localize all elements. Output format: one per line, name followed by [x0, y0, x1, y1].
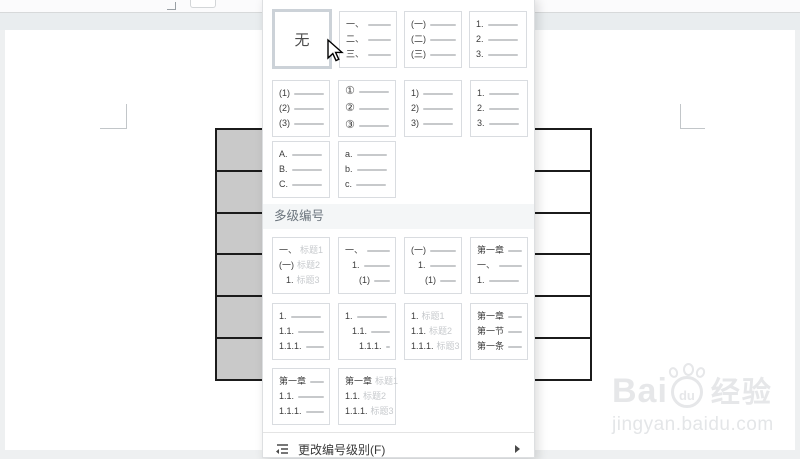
text-placeholder-line: [357, 316, 387, 318]
numbering-preview-line: 一、: [345, 246, 391, 255]
numbering-preview-line: B.: [279, 165, 325, 174]
numbering-preview-line: (1): [359, 276, 391, 285]
multilevel-row-2: 第一章1.1.1.1.1.第一章标题11.1.标题21.1.1.标题3: [272, 368, 396, 425]
numbering-prefix: 1.1.1.: [345, 407, 368, 416]
text-placeholder-line: [356, 184, 386, 186]
numbering-preview-line: 3): [411, 119, 457, 128]
text-placeholder-line: [508, 250, 522, 252]
text-placeholder-line: [367, 250, 390, 252]
numbering-prefix: 1.1.: [352, 327, 367, 336]
numbering-dropdown-panel: 无一、二、三、(一)(二)(三)1.2.3. (1)(2)(3)①②③1)2)3…: [262, 0, 535, 458]
numbering-preview-line: c.: [345, 180, 391, 189]
heading-placeholder: 标题2: [429, 327, 452, 336]
numbering-option[interactable]: a.b.c.: [338, 141, 396, 198]
watermark-logo: Bai du 经验: [612, 371, 774, 408]
text-placeholder-line: [359, 125, 389, 127]
numbering-option[interactable]: ①②③: [338, 80, 396, 137]
numbering-prefix: (一): [411, 20, 426, 29]
text-placeholder-line: [294, 123, 324, 125]
numbering-prefix: (一): [411, 246, 426, 255]
numbering-preview-line: A.: [279, 150, 325, 159]
text-placeholder-line: [298, 396, 324, 398]
numbering-preview-line: a.: [345, 150, 391, 159]
text-placeholder-line: [294, 93, 324, 95]
change-numbering-level-menu-item[interactable]: 更改编号级别(F): [263, 432, 534, 459]
numbering-preview-line: 1.: [345, 312, 391, 321]
text-placeholder-line: [423, 93, 453, 95]
numbering-preview-line: 1.: [418, 261, 457, 270]
text-placeholder-line: [364, 265, 390, 267]
text-placeholder-line: [489, 93, 519, 95]
numbering-preview-line: 3.: [477, 119, 523, 128]
numbering-prefix: (2): [279, 104, 290, 113]
text-placeholder-line: [357, 154, 387, 156]
numbering-preview-line: 2.: [476, 35, 522, 44]
numbering-prefix: (3): [279, 119, 290, 128]
numbering-prefix: 3): [411, 119, 419, 128]
numbering-preview-line: 2): [411, 104, 457, 113]
numbering-preview-line: 1.1.1.标题3: [345, 407, 391, 416]
numbering-prefix: 2.: [477, 104, 485, 113]
multilevel-row-0: 一、标题1(一)标题21.标题3一、1.(1)(一)1.(1)第一章一、1.: [272, 237, 528, 294]
change-numbering-level-icon: [275, 443, 290, 455]
heading-placeholder: 标题1: [422, 312, 445, 321]
numbering-prefix: 1.: [352, 261, 360, 270]
numbering-prefix: 1.: [279, 312, 287, 321]
numbering-prefix: 1.1.1.: [359, 342, 382, 351]
heading-placeholder: 标题2: [363, 392, 386, 401]
numbering-prefix: 1.: [477, 89, 485, 98]
text-placeholder-line: [508, 346, 522, 348]
numbering-preview-line: 1.1.1.: [279, 407, 325, 416]
multilevel-section-header: 多级编号: [263, 204, 534, 229]
watermark-jingyan-text: 经验: [711, 379, 773, 408]
none-label: 无: [294, 29, 309, 50]
text-placeholder-line: [508, 316, 522, 318]
text-placeholder-line: [430, 24, 456, 26]
numbering-preview-line: (2): [279, 104, 325, 113]
numbering-prefix: ②: [345, 103, 355, 114]
simple-row-1: (1)(2)(3)①②③1)2)3)1.2.3.: [272, 80, 528, 137]
text-placeholder-line: [306, 411, 324, 413]
numbering-preview-line: 三、: [346, 50, 392, 59]
numbering-preview-line: 1.: [352, 261, 391, 270]
heading-placeholder: 标题1: [375, 377, 398, 386]
page-margin-mark-topright: [680, 104, 705, 129]
numbering-preview-line: ③: [345, 120, 391, 131]
numbering-preview-line: ②: [345, 103, 391, 114]
numbering-prefix: c.: [345, 180, 352, 189]
numbering-prefix: 1.1.: [279, 327, 294, 336]
text-placeholder-line: [371, 331, 390, 333]
numbering-prefix: ③: [345, 120, 355, 131]
text-placeholder-line: [368, 54, 391, 56]
multilevel-numbering-option[interactable]: 一、标题1(一)标题21.标题3: [272, 237, 330, 294]
numbering-preview-line: 1.1.: [352, 327, 391, 336]
numbering-preview-line: 一、: [477, 261, 523, 270]
multilevel-numbering-option[interactable]: 1.1.1.1.1.1.: [272, 303, 330, 360]
watermark-du-text: du: [679, 388, 695, 405]
numbering-preview-line: 第一章标题1: [345, 377, 391, 386]
numbering-prefix: 3.: [476, 50, 484, 59]
toolbar-tab-remnant: [190, 0, 216, 8]
text-placeholder-line: [368, 39, 391, 41]
text-placeholder-line: [292, 154, 322, 156]
numbering-preview-line: 1.: [477, 89, 523, 98]
text-placeholder-line: [430, 250, 456, 252]
numbering-preview-line: ①: [345, 86, 391, 97]
text-placeholder-line: [374, 280, 390, 282]
change-numbering-level-label: 更改编号级别(F): [298, 441, 515, 458]
numbering-preview-line: 第一章: [477, 312, 523, 321]
numbering-preview-line: 第一章: [477, 246, 523, 255]
baidu-paw-icon: du: [671, 376, 703, 408]
numbering-prefix: C.: [279, 180, 288, 189]
text-placeholder-line: [499, 265, 522, 267]
numbering-preview-line: 2.: [477, 104, 523, 113]
text-placeholder-line: [368, 24, 391, 26]
numbering-preview-line: 1.标题3: [286, 276, 325, 285]
submenu-arrow-icon: [515, 445, 520, 453]
numbering-prefix: 2.: [476, 35, 484, 44]
numbering-prefix: 1.1.: [411, 327, 426, 336]
numbering-preview-line: 1): [411, 89, 457, 98]
numbering-option[interactable]: (1)(2)(3): [272, 80, 330, 137]
numbering-preview-line: 1.1.: [279, 327, 325, 336]
numbering-option[interactable]: 1.2.3.: [470, 80, 528, 137]
numbering-preview-line: 1.1.标题2: [345, 392, 391, 401]
numbering-prefix: (1): [359, 276, 370, 285]
numbering-prefix: 1.1.1.: [279, 342, 302, 351]
heading-placeholder: 标题3: [371, 407, 394, 416]
ruler-corner-mark-icon: [167, 2, 176, 10]
numbering-prefix: a.: [345, 150, 353, 159]
text-placeholder-line: [508, 331, 522, 333]
numbering-prefix: 第一章: [477, 246, 504, 255]
multilevel-numbering-option[interactable]: 1.1.1.1.1.1.: [338, 303, 396, 360]
numbering-prefix: (二): [411, 35, 426, 44]
numbering-prefix: 1.: [345, 312, 353, 321]
numbering-preview-line: (3): [279, 119, 325, 128]
numbering-preview-line: (1): [425, 276, 457, 285]
numbering-prefix: (三): [411, 50, 426, 59]
numbering-option-none[interactable]: 无: [272, 9, 332, 69]
numbering-preview-line: 1.1.1.: [279, 342, 325, 351]
numbering-preview-line: C.: [279, 180, 325, 189]
numbering-prefix: (1): [279, 89, 290, 98]
numbering-preview-line: 第一节: [477, 327, 523, 336]
numbering-preview-line: 一、标题1: [279, 246, 325, 255]
numbering-prefix: (一): [279, 261, 294, 270]
text-placeholder-line: [306, 346, 324, 348]
numbering-prefix: 第一章: [279, 377, 306, 386]
numbering-prefix: (1): [425, 276, 436, 285]
numbering-preview-line: 1.1.: [279, 392, 325, 401]
text-placeholder-line: [357, 169, 387, 171]
text-placeholder-line: [440, 280, 456, 282]
text-placeholder-line: [488, 54, 518, 56]
multilevel-numbering-option[interactable]: 第一章第一节第一条: [470, 303, 528, 360]
multilevel-numbering-option[interactable]: 第一章一、1.: [470, 237, 528, 294]
numbering-preview-line: 第一条: [477, 342, 523, 351]
numbering-preview-line: (三): [411, 50, 457, 59]
text-placeholder-line: [489, 280, 519, 282]
text-placeholder-line: [298, 331, 324, 333]
heading-placeholder: 标题3: [297, 276, 320, 285]
text-placeholder-line: [488, 39, 518, 41]
watermark-url: jingyan.baidu.com: [612, 414, 774, 436]
numbering-prefix: 1.1.1.: [279, 407, 302, 416]
mouse-cursor-icon: [325, 38, 349, 65]
text-placeholder-line: [488, 24, 518, 26]
simple-row-0: 无一、二、三、(一)(二)(三)1.2.3.: [272, 9, 527, 69]
numbering-prefix: 3.: [477, 119, 485, 128]
numbering-prefix: 1.: [411, 312, 419, 321]
numbering-preview-line: (1): [279, 89, 325, 98]
numbering-prefix: 1.1.: [345, 392, 360, 401]
page-margin-mark-topleft: [100, 104, 127, 129]
numbering-preview-line: 1.1.1.标题3: [411, 342, 457, 351]
text-placeholder-line: [359, 91, 389, 93]
numbering-prefix: 1.1.1.: [411, 342, 434, 351]
numbering-prefix: 1.: [476, 20, 484, 29]
numbering-preview-line: 1.: [476, 20, 522, 29]
multilevel-numbering-option[interactable]: 第一章标题11.1.标题21.1.1.标题3: [338, 368, 396, 425]
numbering-preview-line: 1.1.标题2: [411, 327, 457, 336]
numbering-prefix: A.: [279, 150, 288, 159]
numbering-prefix: 一、: [477, 261, 495, 270]
multilevel-numbering-option[interactable]: 一、1.(1): [338, 237, 396, 294]
numbering-option[interactable]: (一)(二)(三): [404, 11, 462, 68]
text-placeholder-line: [423, 123, 453, 125]
text-placeholder-line: [386, 346, 390, 348]
text-placeholder-line: [489, 123, 519, 125]
numbering-prefix: 一、: [345, 246, 363, 255]
heading-placeholder: 标题2: [297, 261, 320, 270]
multilevel-row-1: 1.1.1.1.1.1.1.1.1.1.1.1.1.标题11.1.标题21.1.…: [272, 303, 528, 360]
text-placeholder-line: [310, 381, 324, 383]
numbering-prefix: 1.: [418, 261, 426, 270]
numbering-preview-line: 二、: [346, 35, 392, 44]
numbering-prefix: 一、: [346, 20, 364, 29]
numbering-option[interactable]: A.B.C.: [272, 141, 330, 198]
text-placeholder-line: [423, 108, 453, 110]
numbering-prefix: 1.1.: [279, 392, 294, 401]
simple-row-2: A.B.C.a.b.c.: [272, 141, 396, 198]
numbering-prefix: B.: [279, 165, 288, 174]
numbering-prefix: 第一章: [477, 312, 504, 321]
numbering-preview-line: 1.: [279, 312, 325, 321]
text-placeholder-line: [430, 54, 456, 56]
numbering-option[interactable]: 1.2.3.: [469, 11, 527, 68]
heading-placeholder: 标题1: [300, 246, 323, 255]
numbering-option[interactable]: 1)2)3): [404, 80, 462, 137]
numbering-prefix: 第一章: [345, 377, 372, 386]
numbering-prefix: b.: [345, 165, 353, 174]
numbering-preview-line: b.: [345, 165, 391, 174]
numbering-preview-line: 1.标题1: [411, 312, 457, 321]
text-placeholder-line: [294, 108, 324, 110]
text-placeholder-line: [292, 169, 322, 171]
numbering-preview-line: (一): [411, 246, 457, 255]
text-placeholder-line: [291, 316, 321, 318]
numbering-prefix: ①: [345, 86, 355, 97]
multilevel-numbering-option[interactable]: (一)1.(1): [404, 237, 462, 294]
numbering-preview-line: 3.: [476, 50, 522, 59]
numbering-preview-line: 1.1.1.: [359, 342, 391, 351]
numbering-prefix: 1.: [477, 276, 485, 285]
numbering-preview-line: (一): [411, 20, 457, 29]
numbering-preview-line: 1.: [477, 276, 523, 285]
text-placeholder-line: [430, 265, 456, 267]
numbering-prefix: 2): [411, 104, 419, 113]
text-placeholder-line: [430, 39, 456, 41]
numbering-prefix: 第一条: [477, 342, 504, 351]
text-placeholder-line: [489, 108, 519, 110]
text-placeholder-line: [292, 184, 322, 186]
numbering-prefix: 第一节: [477, 327, 504, 336]
heading-placeholder: 标题3: [437, 342, 460, 351]
numbering-preview-line: 第一章: [279, 377, 325, 386]
numbering-prefix: 一、: [279, 246, 297, 255]
multilevel-numbering-option[interactable]: 1.标题11.1.标题21.1.1.标题3: [404, 303, 462, 360]
numbering-preview-line: (一)标题2: [279, 261, 325, 270]
numbering-prefix: 1.: [286, 276, 294, 285]
multilevel-numbering-option[interactable]: 第一章1.1.1.1.1.: [272, 368, 330, 425]
watermark-bai-text: Bai: [612, 374, 668, 408]
numbering-prefix: 1): [411, 89, 419, 98]
text-placeholder-line: [359, 108, 389, 110]
numbering-preview-line: (二): [411, 35, 457, 44]
numbering-preview-line: 一、: [346, 20, 392, 29]
baidu-jingyan-watermark: Bai du 经验 jingyan.baidu.com: [612, 371, 774, 436]
paw-toe-icon: [683, 363, 694, 376]
